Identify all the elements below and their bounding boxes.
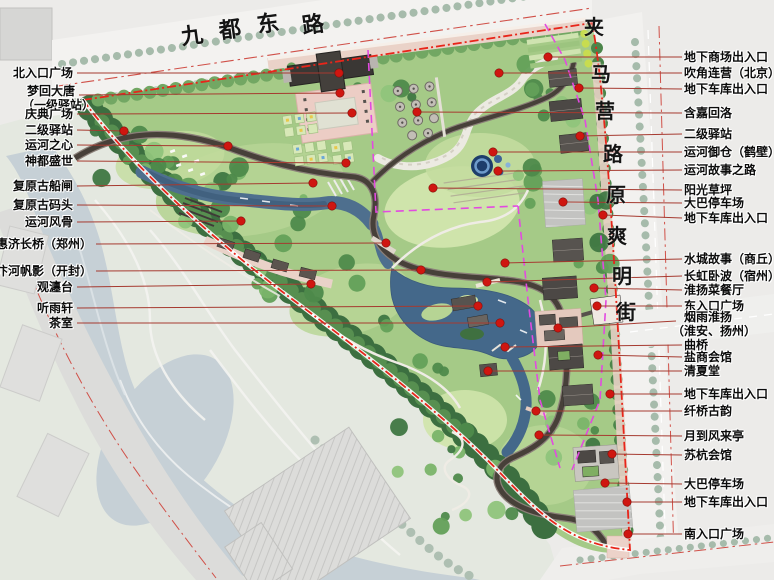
- callout-label: 运河故事之路: [684, 163, 756, 177]
- tree-icon: [589, 194, 605, 210]
- callout-label: 南入口广场: [684, 527, 744, 541]
- bus-parking-north: [542, 179, 585, 228]
- callout-label: 茶室: [49, 316, 73, 330]
- callout-label: 地下车库出入口: [684, 387, 768, 401]
- pink-courtyards: [535, 308, 583, 347]
- tree-icon: [505, 507, 518, 520]
- tree-icon: [525, 198, 536, 209]
- callout-label: 长虹卧波（宿州）: [684, 269, 774, 283]
- tree-icon: [546, 449, 563, 466]
- callout-label: 地下车库出入口: [684, 495, 768, 509]
- tree-icon: [525, 82, 539, 96]
- tree-icon: [412, 353, 428, 369]
- tree-icon: [447, 445, 455, 453]
- street-name-char: 爽: [607, 227, 627, 247]
- street-name-char: 明: [612, 267, 632, 287]
- callout-label: 二级驿站: [684, 127, 732, 141]
- callout-label: 大巴停车场: [684, 196, 744, 210]
- callout-label: 清夏堂: [684, 364, 720, 378]
- bus-parking-south: [573, 486, 632, 533]
- park-masterplan-map: [0, 0, 774, 580]
- tree-icon: [538, 110, 550, 122]
- callout-label: 大巴停车场: [684, 477, 744, 491]
- callout-label: 吹角连营（北京）: [684, 66, 774, 80]
- tree-icon: [538, 390, 556, 408]
- street-name-char: 马: [591, 65, 611, 85]
- callout-label: 阳光草坪: [684, 183, 732, 197]
- callout-label: 复原古船闸: [13, 179, 73, 193]
- callout-label: 地下商场出入口: [684, 50, 768, 64]
- street-name-char: 都: [218, 18, 243, 43]
- callout-label: 二级驿站: [25, 123, 73, 137]
- callout-label: 运河风骨: [25, 215, 73, 229]
- street-name-char: 原: [606, 186, 626, 206]
- callout-label: 淮扬菜餐厅: [684, 283, 744, 297]
- callout-label: 庆典广场: [25, 107, 73, 121]
- callout-label: 汴河帆影（开封）: [0, 264, 92, 278]
- tree-icon: [380, 319, 393, 332]
- callout-label: 惠济长桥（郑州）: [0, 237, 92, 251]
- callout-label: 运河御仓（鹤壁）: [684, 145, 774, 159]
- street-name-char: 路: [603, 145, 623, 165]
- callout-label: 纤桥古韵: [684, 404, 732, 418]
- suhang-guildhall: [573, 445, 619, 482]
- callout-label: 观瀍台: [37, 280, 73, 294]
- park-masterplan-screenshot: 北入口广场梦回大唐（一级驿站）庆典广场二级驿站运河之心神都盛世复原古船闸复原古码…: [0, 0, 774, 580]
- tree-icon: [227, 174, 238, 185]
- callout-label: 含嘉回洛: [684, 106, 732, 120]
- street-name-char: 营: [595, 102, 615, 122]
- tree-icon: [339, 254, 355, 270]
- tree-icon: [513, 170, 524, 181]
- street-name-char: 街: [616, 303, 636, 323]
- callout-label: 地下车库出入口: [684, 211, 768, 225]
- callout-label: 神都盛世: [25, 154, 73, 168]
- tree-icon: [523, 158, 541, 176]
- street-name-char: 路: [301, 13, 326, 38]
- tree-icon: [274, 234, 292, 252]
- tree-icon: [145, 142, 164, 161]
- callout-label: 复原古码头: [13, 198, 73, 212]
- tree-icon: [90, 125, 101, 136]
- tree-icon: [577, 417, 590, 430]
- callout-label: 运河之心: [25, 138, 73, 152]
- street-name-char: 夹: [584, 18, 604, 38]
- callout-label: 盐商会馆: [684, 350, 732, 364]
- tree-icon: [390, 418, 408, 436]
- street-name-char: 东: [256, 12, 281, 37]
- tree-icon: [459, 509, 472, 522]
- tree-icon: [487, 501, 505, 519]
- callout-label: 北入口广场: [13, 66, 73, 80]
- tree-icon: [349, 275, 366, 292]
- street-name-char: 九: [180, 24, 205, 49]
- tree-icon: [392, 466, 404, 478]
- callout-label: 烟雨淮扬（淮安、扬州）: [684, 310, 756, 338]
- qingxia-hall: [479, 363, 497, 377]
- tree-icon: [589, 233, 608, 252]
- callout-label: 听雨轩: [37, 301, 73, 315]
- tree-icon: [591, 426, 600, 435]
- callout-label: 水城故事（商丘）: [684, 252, 774, 266]
- tree-icon: [222, 216, 239, 233]
- tree-icon: [433, 518, 450, 535]
- callout-label: 地下车库出入口: [684, 82, 768, 96]
- tree-icon: [290, 216, 305, 231]
- tree-icon: [92, 169, 110, 187]
- callout-label: 苏杭会馆: [684, 448, 732, 462]
- callout-label: 月到风来亭: [684, 429, 744, 443]
- tree-icon: [425, 464, 437, 476]
- tree-icon: [432, 430, 444, 442]
- tree-icon: [439, 366, 449, 376]
